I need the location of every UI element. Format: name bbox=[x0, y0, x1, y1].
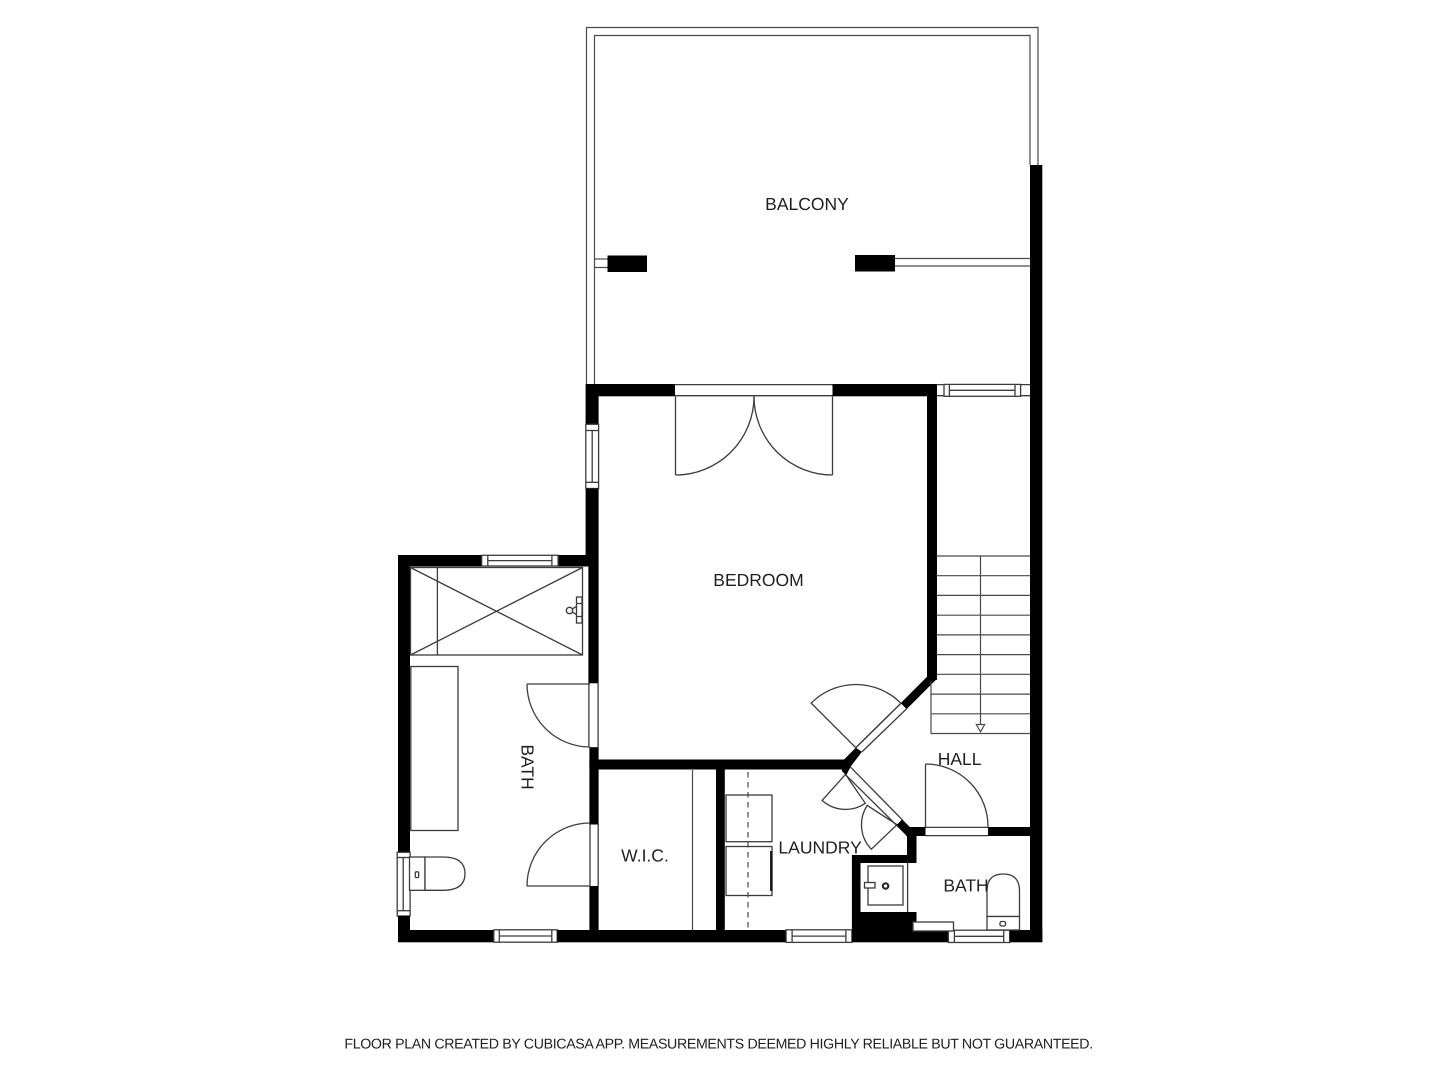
svg-text:BEDROOM: BEDROOM bbox=[713, 570, 803, 590]
svg-text:BALCONY: BALCONY bbox=[765, 194, 849, 214]
svg-text:LAUNDRY: LAUNDRY bbox=[778, 838, 862, 858]
svg-text:BATH: BATH bbox=[943, 875, 988, 895]
svg-text:HALL: HALL bbox=[938, 749, 982, 769]
svg-text:FLOOR PLAN CREATED BY CUBICASA: FLOOR PLAN CREATED BY CUBICASA APP. MEAS… bbox=[344, 1037, 1092, 1053]
svg-text:W.I.C.: W.I.C. bbox=[621, 846, 669, 866]
svg-text:BATH: BATH bbox=[518, 744, 538, 789]
